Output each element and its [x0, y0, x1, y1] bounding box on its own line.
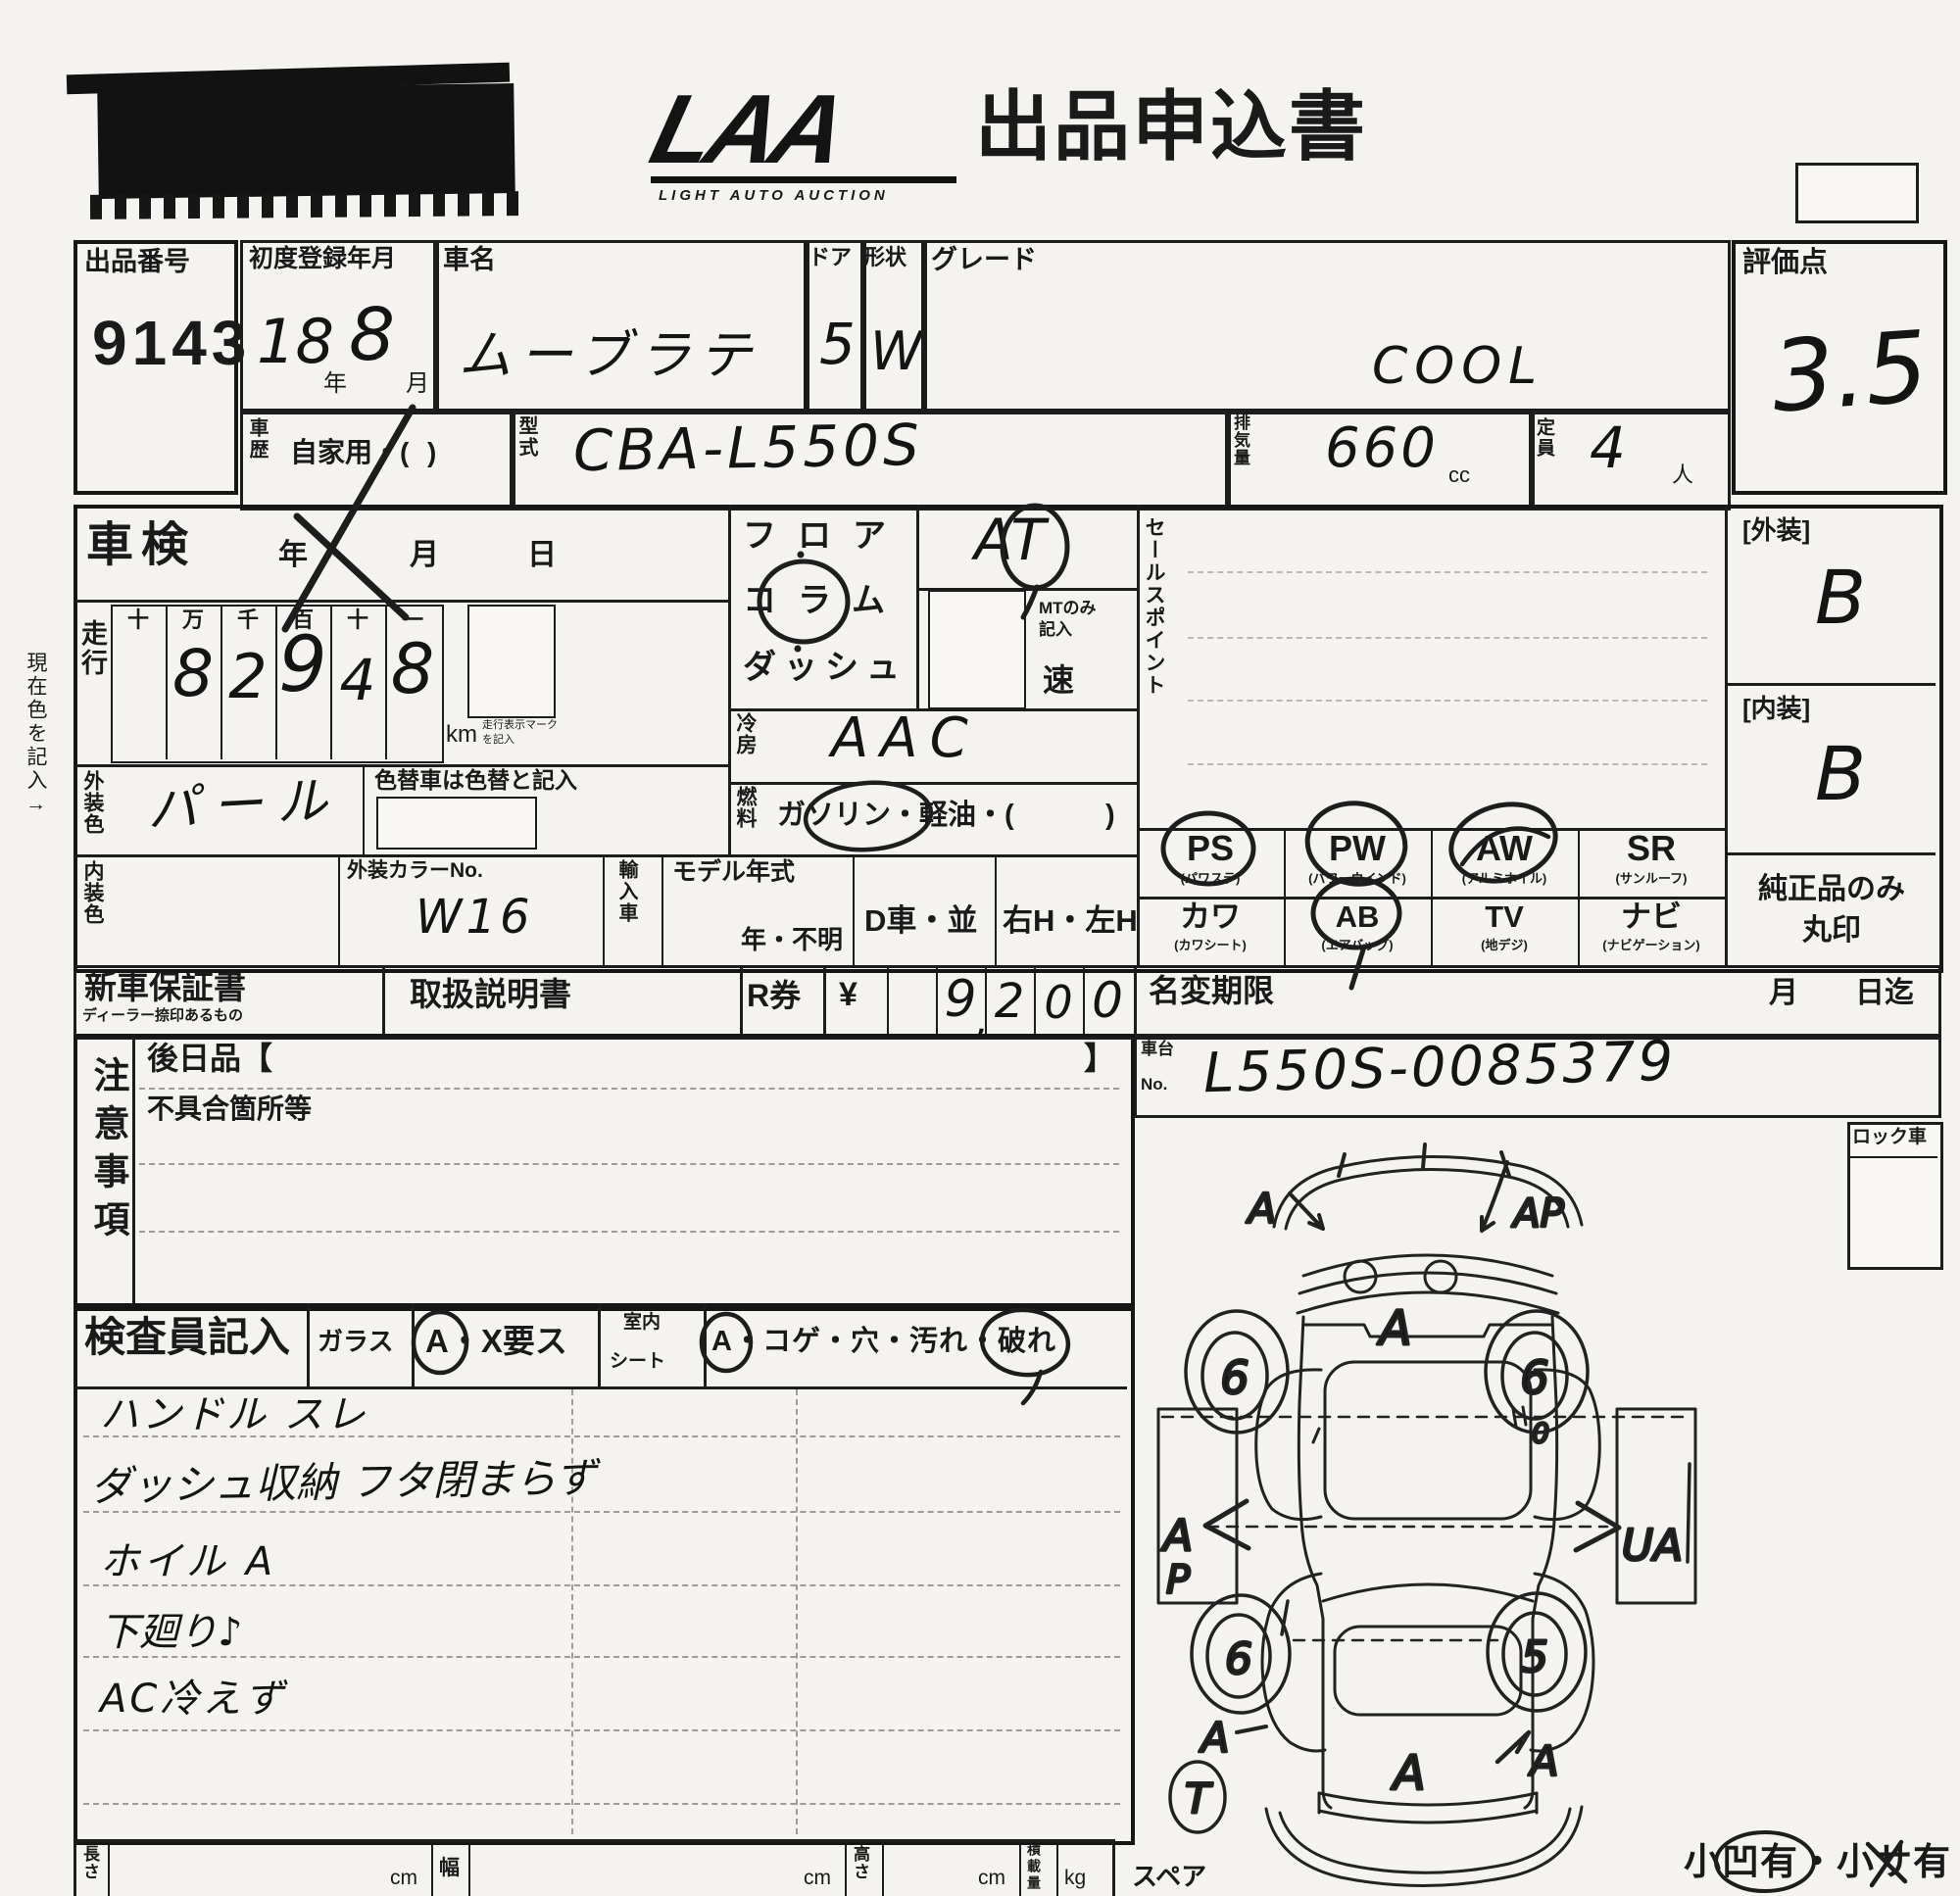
displacement-label: 排気量	[1232, 413, 1249, 502]
rule	[823, 965, 826, 1034]
shift-column: コラム	[743, 584, 906, 617]
mt-note1: MTのみ	[1039, 600, 1097, 616]
model-year-label: モデル年式	[672, 860, 795, 885]
rule	[338, 854, 340, 965]
manual-label: 取扱説明書	[410, 978, 571, 1010]
history-value: 自家用・(	[290, 439, 409, 466]
capacity-label: 定員	[1535, 417, 1553, 500]
name-change-day: 日迄	[1855, 979, 1914, 1008]
cautions-label: 注意事項	[90, 1056, 126, 1291]
mileage-unit-note1: 走行表示マーク	[482, 720, 558, 731]
shift-trans-value: AT	[974, 511, 1048, 568]
rule	[1134, 965, 1137, 1034]
sales-line	[1188, 763, 1707, 765]
d-car-label: D車・並	[864, 905, 977, 936]
length-label: 長さ	[81, 1845, 98, 1894]
diagram-front-left-mark: A	[1246, 1185, 1277, 1233]
rule	[704, 1303, 707, 1386]
equip-navi: ナビ	[1578, 901, 1725, 932]
wheel-rr-mark: 5	[1521, 1632, 1548, 1682]
inspector-line	[83, 1656, 1120, 1658]
inspector-note-0: ハンドル スレ	[100, 1395, 368, 1434]
fuel-value: ガソリン・軽油・(	[777, 802, 1014, 830]
inspector-vline	[796, 1389, 798, 1834]
equip-aw: AW	[1431, 831, 1578, 866]
equip-kawa-sub: (カワシート)	[1137, 939, 1284, 951]
aircon-value: AAC	[831, 711, 980, 766]
auction-sheet: LAA LIGHT AUTO AUCTION 出品申込書 現在色を記入→ 出品番…	[0, 0, 1960, 1896]
mileage-h2: 千	[220, 609, 275, 631]
score-value: 3.5	[1769, 318, 1932, 427]
mileage-h1: 万	[166, 609, 220, 631]
rule	[382, 965, 385, 1034]
warranty-sub: ディーラー捺印あるもの	[82, 1008, 243, 1023]
rule	[916, 505, 919, 708]
height-unit: cm	[978, 1868, 1005, 1888]
score-label: 評価点	[1742, 249, 1828, 277]
amount-d4: 0	[1083, 976, 1132, 1025]
height-label: 高さ	[852, 1845, 868, 1894]
rule	[603, 854, 605, 965]
inspection-label: 車検	[86, 522, 196, 569]
glass-options: A・X要ス	[425, 1325, 567, 1357]
inspector-line	[83, 1803, 1120, 1805]
inspection-month: 月	[410, 541, 439, 570]
defects-label: 不具合箇所等	[147, 1095, 312, 1123]
mileage-d2: 2	[220, 647, 275, 707]
mileage-h4: 十	[330, 609, 385, 631]
car-name-value: ムーブラテ	[459, 329, 759, 382]
rule	[1056, 1839, 1058, 1896]
diagram-front-right-mark: AP	[1510, 1191, 1564, 1237]
chassis-label-2: No.	[1141, 1076, 1167, 1093]
rule	[887, 965, 889, 1034]
genuine-note-2: 丸印	[1728, 916, 1935, 946]
mileage-h0: 十	[111, 609, 166, 631]
history-label: 車歴	[247, 417, 267, 500]
sales-line	[1188, 700, 1707, 702]
rule	[845, 1839, 847, 1896]
speed-suffix: 速	[1043, 664, 1074, 696]
aircon-label: 冷房	[735, 712, 756, 779]
int-grade-value: B	[1815, 737, 1866, 811]
mileage-d1: 8	[166, 642, 220, 706]
capacity-unit: 人	[1672, 464, 1693, 486]
shift-dash: ダッシュ	[743, 651, 907, 684]
r-ticket-label: R券	[747, 980, 801, 1011]
color-change-label: 色替車は色替と記入	[374, 769, 577, 792]
color-no-label: 外装カラーNo.	[347, 860, 483, 881]
mileage-d4: 4	[330, 652, 385, 708]
caution-line	[139, 1088, 1119, 1090]
wheel-fl-mark: 6	[1220, 1351, 1249, 1404]
equip-pw: PW	[1284, 831, 1431, 866]
mileage-h5: 一	[385, 609, 440, 631]
fuel-label: 燃料	[735, 786, 756, 851]
equip-ps: PS	[1137, 831, 1284, 866]
shift-floor: フロア	[743, 519, 907, 553]
rule	[412, 1303, 415, 1386]
caution-line	[139, 1231, 1119, 1233]
caution-line	[139, 1163, 1119, 1165]
rule	[307, 1303, 310, 1386]
history-paren: )	[427, 439, 436, 466]
later-goods-label: 後日品【	[147, 1043, 272, 1074]
first-reg-month-suffix: 月	[406, 372, 429, 396]
rear-left-mark: A	[1199, 1714, 1230, 1762]
car-diagram: A AP A A 6 6 6 5	[1117, 1137, 1960, 1896]
equip-pw-sub: (パワーウインド)	[1284, 872, 1431, 885]
width-unit: cm	[804, 1868, 831, 1888]
equip-sr-sub: (サンルーフ)	[1578, 872, 1725, 885]
speed-box	[928, 590, 1026, 709]
inspector-label: 検査員記入	[84, 1317, 290, 1358]
load-label: 積載量	[1027, 1842, 1041, 1895]
amount-d2: 2	[985, 978, 1034, 1025]
inspection-day: 日	[527, 541, 557, 570]
ext-grade-value: B	[1815, 560, 1866, 635]
doors-value: 5	[819, 316, 856, 372]
chassis-value: L550S-0085379	[1202, 1035, 1677, 1102]
shape-label: 形状	[863, 247, 906, 268]
rule	[1725, 683, 1935, 686]
rule	[431, 1839, 433, 1896]
mt-note2: 記入	[1039, 621, 1072, 638]
inspector-line	[83, 1584, 1120, 1586]
car-name-label: 車名	[443, 247, 496, 273]
rule	[363, 764, 365, 854]
sales-line	[1188, 637, 1707, 639]
color-change-box	[376, 797, 537, 850]
warranty-label: 新車保証書	[84, 971, 246, 1003]
handle-pos-label: 右H・左H	[1003, 905, 1138, 936]
first-reg-month: 8	[349, 299, 395, 371]
laa-logo: LAA	[643, 80, 851, 178]
inspector-line	[83, 1511, 1120, 1513]
fuel-paren: )	[1105, 802, 1115, 830]
doors-label: ドア	[808, 247, 852, 268]
glass-label: ガラス	[318, 1329, 393, 1354]
grade-label: グレード	[931, 247, 1037, 273]
margin-note: 現在色を記入→	[25, 652, 46, 965]
displacement-value: 660	[1325, 421, 1439, 476]
sales-line	[1188, 571, 1707, 573]
rule	[995, 854, 997, 965]
model-code-label: 型式	[516, 415, 536, 500]
sales-point-label: セールスポイント	[1144, 516, 1164, 820]
seat-label-1: 室内	[623, 1313, 661, 1332]
load-unit: kg	[1064, 1868, 1086, 1888]
chassis-label-1: 車台	[1141, 1041, 1174, 1057]
mileage-unit: km	[446, 723, 477, 747]
inspector-line	[83, 1729, 1120, 1731]
int-grade-label: [内装]	[1742, 696, 1810, 721]
color-no-value: W16	[416, 894, 534, 941]
spare-mark: T	[1185, 1774, 1213, 1823]
redacted-block	[97, 83, 515, 199]
ext-grade-label: [外装]	[1742, 517, 1810, 543]
model-year-value: 年・不明	[741, 927, 843, 952]
mileage-d5: 8	[385, 635, 440, 704]
capacity-cell	[1529, 409, 1731, 510]
inspector-note-3: 下廻り♪	[100, 1613, 243, 1652]
redacted-barcode	[90, 191, 519, 219]
mileage-d3: 9	[275, 627, 330, 704]
stamp-box	[1795, 163, 1919, 223]
rule	[468, 1839, 470, 1896]
seat-label-2: シート	[610, 1352, 665, 1371]
rule	[728, 505, 731, 854]
mileage-label: 走行	[78, 619, 105, 747]
equip-sr: SR	[1578, 831, 1725, 866]
mileage-unit-note2: を記入	[482, 735, 514, 746]
later-goods-close: 】	[1084, 1043, 1115, 1074]
equip-ab-sub: (エアバッグ)	[1284, 939, 1431, 951]
rule	[661, 854, 663, 965]
rule	[1725, 852, 1935, 855]
inspector-note-1: ダッシュ収納 フタ閉まらず	[90, 1457, 597, 1507]
mid-right-mark: UA	[1622, 1521, 1683, 1571]
equip-ps-sub: (パワステ)	[1137, 872, 1284, 885]
rule	[108, 1839, 110, 1896]
grade-value: COOL	[1372, 341, 1543, 392]
name-change-month: 月	[1769, 979, 1798, 1008]
yen-sign: ¥	[839, 978, 857, 1011]
rule	[728, 782, 1137, 785]
diagram-hood-mark: A	[1377, 1301, 1412, 1356]
first-reg-year: 18	[257, 312, 334, 372]
rule	[598, 1303, 601, 1386]
rule	[73, 1386, 1127, 1389]
diagram-hatch-mark: A	[1391, 1746, 1426, 1801]
entry-no-value: 9143	[92, 312, 251, 374]
import-label: 輸入車	[616, 859, 636, 957]
int-color-label: 内装色	[82, 860, 103, 941]
genuine-note-1: 純正品のみ	[1728, 875, 1935, 904]
rule	[740, 965, 743, 1034]
ext-color-value: パール	[146, 775, 342, 836]
dimensions-row	[73, 1839, 1115, 1896]
width-label: 幅	[439, 1858, 460, 1878]
rear-right-mark: A	[1528, 1737, 1559, 1785]
amount-d3: 0	[1034, 980, 1083, 1025]
grade-cell	[921, 240, 1731, 414]
equip-tv: TV	[1431, 901, 1578, 932]
rule	[132, 1034, 135, 1303]
mid-left-mark: A	[1160, 1511, 1193, 1561]
logo-subtitle: LIGHT AUTO AUCTION	[659, 188, 889, 203]
rule	[73, 600, 728, 603]
equip-aw-sub: (アルミホイル)	[1431, 872, 1578, 885]
door-mark: 0	[1532, 1417, 1549, 1449]
page-title: 出品申込書	[975, 88, 1367, 165]
inspector-note-2: ホイル A	[100, 1542, 276, 1581]
equip-tv-sub: (地デジ)	[1431, 939, 1578, 951]
model-code-value: CBA-L550S	[573, 416, 924, 479]
capacity-value: 4	[1590, 419, 1626, 476]
first-reg-year-suffix: 年	[323, 372, 347, 396]
shape-value: W	[870, 325, 922, 378]
entry-no-label: 出品番号	[84, 249, 190, 275]
mid-left-mark-2: P	[1166, 1558, 1191, 1603]
logo-underline	[651, 176, 956, 183]
rule	[853, 854, 855, 965]
ext-color-label: 外装色	[82, 770, 103, 851]
inspection-year: 年	[278, 541, 308, 570]
seat-options: A・コゲ・穴・汚れ・破れ	[711, 1328, 1056, 1356]
wheel-rl-mark: 6	[1225, 1634, 1252, 1684]
wheel-fr-mark: 6	[1520, 1351, 1548, 1404]
rule	[882, 1839, 884, 1896]
name-change-label: 名変期限	[1149, 975, 1274, 1006]
rule	[73, 854, 1137, 857]
first-reg-label: 初度登録年月	[249, 247, 396, 271]
inspector-note-4: AC冷えず	[100, 1679, 286, 1719]
displacement-unit: cc	[1448, 464, 1470, 486]
equip-navi-sub: (ナビゲーション)	[1578, 939, 1725, 951]
mileage-mark-box	[467, 605, 556, 718]
length-unit: cm	[390, 1868, 417, 1888]
equip-ab: AB	[1284, 901, 1431, 932]
equip-kawa: カワ	[1137, 901, 1284, 932]
rule	[1019, 1839, 1021, 1896]
